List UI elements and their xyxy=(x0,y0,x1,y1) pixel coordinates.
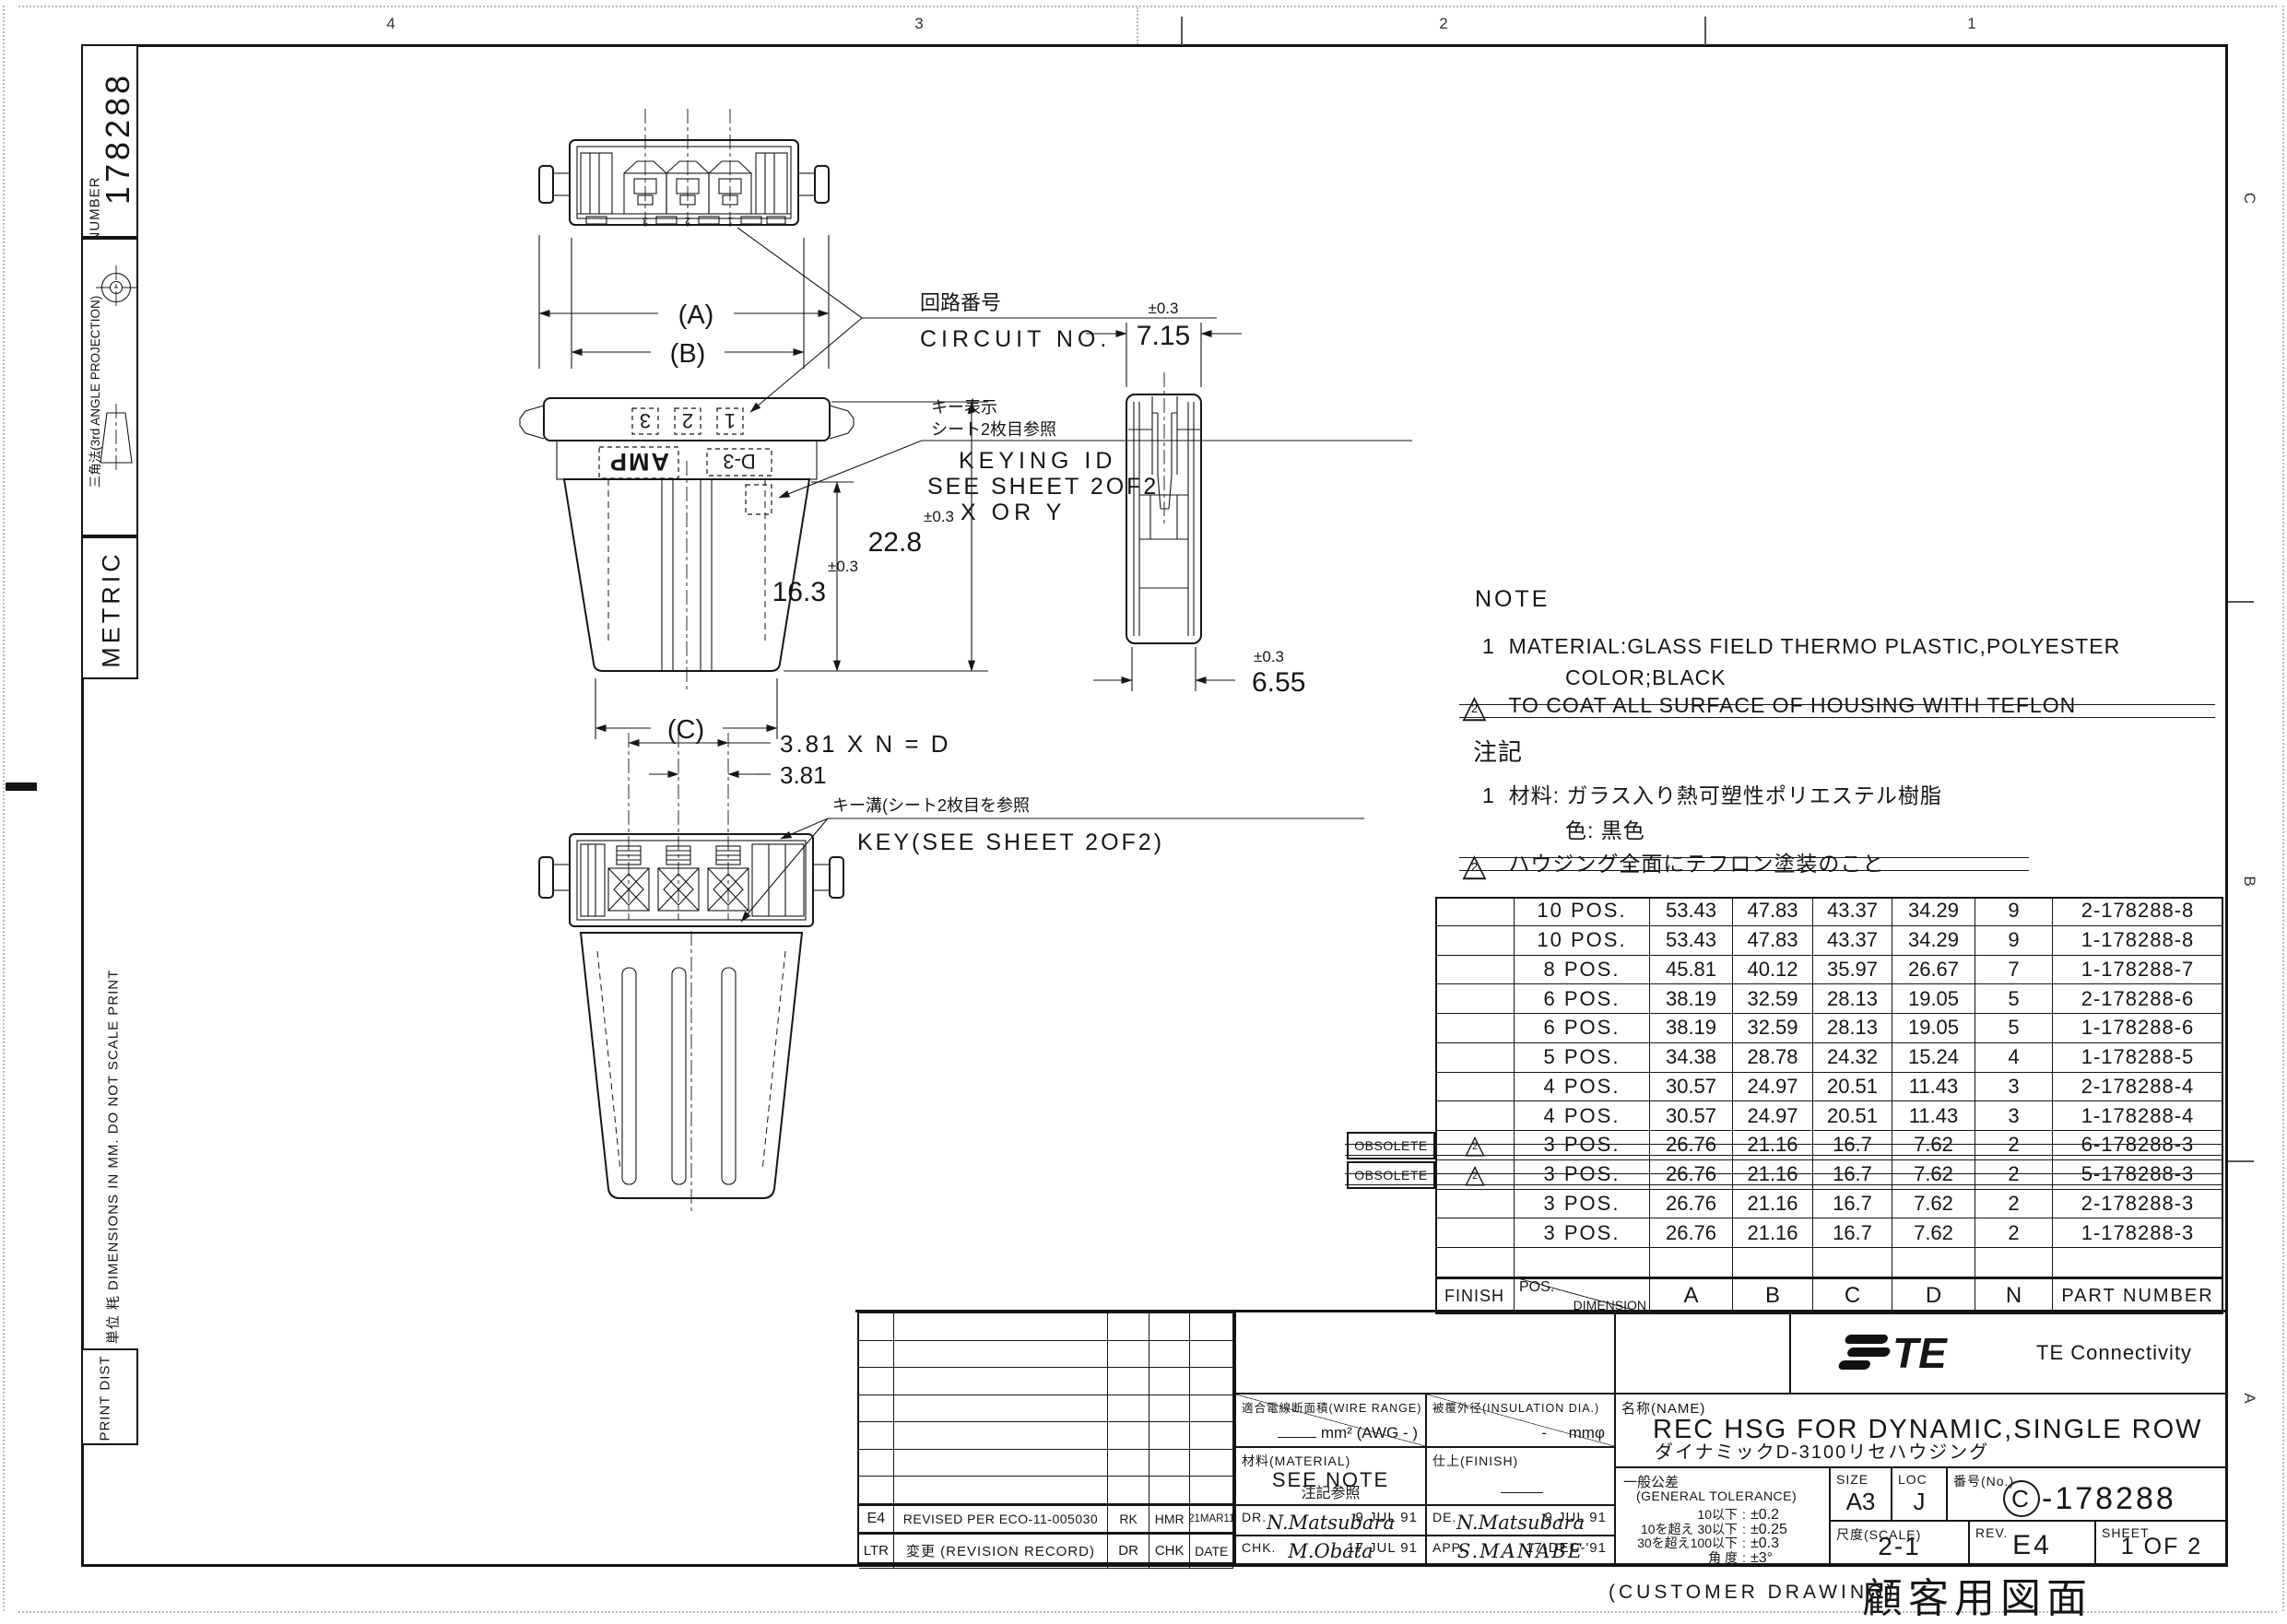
revision-row xyxy=(859,1477,1233,1504)
header-pos-dimension: POS. DIMENSION xyxy=(1515,1277,1650,1314)
keying-en2: SEE SHEET 2OF2 xyxy=(927,474,1159,500)
cell-a: 30.57 xyxy=(1650,1101,1733,1131)
cell-d: 15.24 xyxy=(1892,1043,1975,1073)
cell-c: 16.7 xyxy=(1813,1218,1892,1248)
cell-n: 3 xyxy=(1975,1101,2053,1131)
size-label: SIZE xyxy=(1836,1472,1869,1487)
cell-part: 1-178288-7 xyxy=(2053,956,2223,985)
cell-d: 11.43 xyxy=(1892,1101,1975,1131)
note-item1-text: MATERIAL:GLASS FIELD THERMO PLASTIC,POLY… xyxy=(1509,634,2121,658)
cell-finish xyxy=(1435,1014,1515,1043)
tol-range: 角 度 xyxy=(1620,1551,1738,1566)
tol-value: ±0.2 xyxy=(1751,1508,1825,1523)
keying-en1: KEYING ID xyxy=(959,448,1116,474)
cell-c: 20.51 xyxy=(1813,1101,1892,1131)
cell-part: 2-178288-6 xyxy=(2053,984,2223,1014)
cell-part: 2-178288-8 xyxy=(2053,897,2223,926)
cell-n: 3 xyxy=(1975,1073,2053,1102)
revision-row xyxy=(859,1422,1233,1450)
material-label: 材料(MATERIAL) xyxy=(1242,1452,1350,1470)
cell-b: 21.16 xyxy=(1733,1190,1813,1219)
circled-c: C xyxy=(2003,1480,2040,1517)
parts-table-header: FINISH POS. DIMENSION A B C D N PART NUM… xyxy=(1435,1277,2223,1314)
wire-range-label: 適合電線断面積(WIRE RANGE) xyxy=(1242,1398,1421,1416)
revision-row xyxy=(859,1313,1233,1341)
cell-part: 1-178288-4 xyxy=(2053,1101,2223,1131)
cell-n: 9 xyxy=(1975,897,2053,926)
loc-value: J xyxy=(1892,1488,1946,1516)
header-pos: POS. xyxy=(1519,1279,1554,1296)
cell-c: 20.51 xyxy=(1813,1073,1892,1102)
tb-brand-cell: TE TE Connectivity xyxy=(1790,1312,2228,1394)
cell-n: 5 xyxy=(1975,984,2053,1014)
cell-finish xyxy=(1435,1073,1515,1102)
rev-dr: RK xyxy=(1108,1506,1149,1533)
note-item1-jp-no: 1 xyxy=(1482,783,1495,807)
strike-line xyxy=(1459,857,2029,858)
cell-a: 45.81 xyxy=(1650,956,1733,985)
revision-row xyxy=(859,1368,1233,1395)
cell-finish xyxy=(1435,926,1515,956)
tb-loc: LOC J xyxy=(1892,1467,1947,1521)
dim-22-8: 22.8 xyxy=(868,527,922,558)
rev-header-chk: CHK xyxy=(1149,1535,1191,1569)
dim-a-label: (A) xyxy=(678,300,714,330)
revision-empty-rows xyxy=(859,1313,1233,1504)
cell-finish xyxy=(1435,1101,1515,1131)
strike-line xyxy=(1459,704,2215,705)
projection-symbol xyxy=(96,265,136,472)
cell-b: 32.59 xyxy=(1733,984,1813,1014)
dim-6-55: 6.55 xyxy=(1252,667,1305,698)
cell-finish xyxy=(1435,1190,1515,1219)
cell-n: 9 xyxy=(1975,926,2053,956)
cell-pos: 6 POS. xyxy=(1515,984,1650,1014)
rev-header-dr: DR xyxy=(1108,1535,1149,1569)
cell-n: 4 xyxy=(1975,1043,2053,1073)
tb-number: 番号(No.) C-178288 xyxy=(1947,1467,2228,1521)
revision-row xyxy=(859,1341,1233,1369)
scale-value: 2-1 xyxy=(1831,1532,1968,1561)
tolerance-label-en: (GENERAL TOLERANCE) xyxy=(1636,1489,1797,1503)
note-item2-jp-text: ハウジング全面にテフロン塗装のこと xyxy=(1508,852,1884,876)
rev-date: 21MAR11 xyxy=(1190,1506,1233,1533)
cell-finish xyxy=(1435,1043,1515,1073)
cell-part: 1-178288-6 xyxy=(2053,1014,2223,1043)
cell-pos: 10 POS. xyxy=(1515,926,1650,956)
cell-finish xyxy=(1435,956,1515,985)
tb-tolerance: 一般公差 (GENERAL TOLERANCE) 10以下:±0.2 10を超え… xyxy=(1615,1467,1830,1564)
revision-table: E4 REVISED PER ECO-11-005030 RK HMR 21MA… xyxy=(857,1312,1235,1564)
cell-part: 1-178288-8 xyxy=(2053,926,2223,956)
table-row: 8 POS.45.8140.1235.9726.6771-178288-7 xyxy=(1345,956,2223,985)
note-item1-no: 1 xyxy=(1482,634,1495,658)
parts-table: 10 POS.53.4347.8343.3734.2992-178288-810… xyxy=(1345,897,2223,1314)
parts-table-rows: 10 POS.53.4347.8343.3734.2992-178288-810… xyxy=(1345,897,2223,1277)
table-row: 3 POS.26.7621.1616.77.6221-178288-3 xyxy=(1345,1218,2223,1248)
rev-header-desc: 変更 (REVISION RECORD) xyxy=(894,1535,1109,1569)
tol-value: ±0.3 xyxy=(1751,1536,1825,1551)
material-value-jp: 注記参照 xyxy=(1236,1480,1425,1502)
note-item1: 1 MATERIAL:GLASS FIELD THERMO PLASTIC,PO… xyxy=(1482,634,2120,659)
cell-d: 19.05 xyxy=(1892,1014,1975,1043)
front-pos-number: 3 xyxy=(640,409,651,432)
cell-c: 43.37 xyxy=(1813,926,1892,956)
cavity-number: 3 xyxy=(642,215,648,226)
rev-ltr: E4 xyxy=(859,1506,894,1533)
tol-range: 10以下 xyxy=(1620,1508,1738,1523)
cell-c: 28.13 xyxy=(1813,1014,1892,1043)
header-part-number: PART NUMBER xyxy=(2053,1277,2223,1314)
rev-header-date: DATE xyxy=(1190,1535,1233,1569)
pitch-value: 3.81 xyxy=(780,761,827,789)
dim-16-3: 16.3 xyxy=(772,577,826,607)
insulation-label: 被覆外径(INSULATION DIA.) xyxy=(1432,1398,1599,1416)
tb-rev: REV. E4 xyxy=(1969,1521,2095,1564)
cell-pos xyxy=(1515,1248,1650,1277)
dr-signature: N.Matsubara xyxy=(1236,1512,1425,1534)
cell-part: 2-178288-4 xyxy=(2053,1073,2223,1102)
wire-range-value: mm² (AWG - ) xyxy=(1278,1424,1418,1442)
dim-22-8-tol: ±0.3 xyxy=(924,508,954,525)
document-number: C-178288 xyxy=(2003,1480,2176,1517)
cell-a: 38.19 xyxy=(1650,984,1733,1014)
header-b: B xyxy=(1733,1277,1813,1314)
table-row: 6 POS.38.1932.5928.1319.0551-178288-6 xyxy=(1345,1014,2223,1043)
revision-triangle-icon: 2 xyxy=(1462,1163,1488,1186)
dim-a-b: (A) (B) xyxy=(539,235,829,369)
note-item2-text: TO COAT ALL SURFACE OF HOUSING WITH TEFL… xyxy=(1508,693,2076,717)
tol-value: ±3° xyxy=(1751,1551,1825,1566)
view-top: 3 2 1 xyxy=(539,109,829,230)
tolerance-row: 10以下:±0.2 xyxy=(1620,1508,1825,1523)
tb-size: SIZE A3 xyxy=(1830,1467,1892,1521)
cell-b: 24.97 xyxy=(1733,1101,1813,1131)
cell-b: 40.12 xyxy=(1733,956,1813,985)
cell-c: 24.32 xyxy=(1813,1043,1892,1073)
tb-chk: CHK. 17 JUL 91 M.Obata xyxy=(1235,1536,1426,1564)
cell-a xyxy=(1650,1248,1733,1277)
wire-range-unit: mm² (AWG - ) xyxy=(1321,1424,1418,1442)
cell-a: 26.76 xyxy=(1650,1218,1733,1248)
brand-name: TE Connectivity xyxy=(2036,1341,2192,1365)
cell-part: 1-178288-3 xyxy=(2053,1218,2223,1248)
keying-en3: X OR Y xyxy=(961,500,1066,525)
customer-drawing-en: (CUSTOMER DRAWING) xyxy=(1609,1582,1896,1604)
tb-empty-cell xyxy=(1615,1312,1790,1394)
cell-n: 5 xyxy=(1975,1014,2053,1043)
strike-line xyxy=(1345,1184,2223,1185)
table-row: 10 POS.53.4347.8343.3734.2991-178288-8 xyxy=(1345,926,2223,956)
rev-header-ltr: LTR xyxy=(859,1535,894,1569)
rev-desc: REVISED PER ECO-11-005030 xyxy=(894,1506,1109,1533)
tolerance-row: 10を超え 30以下:±0.25 xyxy=(1620,1523,1825,1537)
finish-none-line xyxy=(1501,1492,1543,1493)
revision-header-row: LTR 変更 (REVISION RECORD) DR CHK DATE xyxy=(859,1533,1233,1569)
cell-d xyxy=(1892,1248,1975,1277)
rev-chk: HMR xyxy=(1149,1506,1191,1533)
note-item1-jp-text: 材料: ガラス入り熱可塑性ポリエステル樹脂 xyxy=(1509,783,1942,807)
cell-d: 34.29 xyxy=(1892,897,1975,926)
cell-finish xyxy=(1435,897,1515,926)
tolerance-row: 角 度:±3° xyxy=(1620,1551,1825,1566)
tb-de: DE. 9 JUL 91 N.Matsubara xyxy=(1426,1505,1615,1536)
revision-entry-row: E4 REVISED PER ECO-11-005030 RK HMR 21MA… xyxy=(859,1504,1233,1533)
rev-value: E4 xyxy=(1970,1530,2094,1561)
cell-pos: 5 POS. xyxy=(1515,1043,1650,1073)
circuit-no-jp: 回路番号 xyxy=(920,291,1001,314)
cell-pos: 10 POS. xyxy=(1515,897,1650,926)
table-row: OBSOLETE23 POS.26.7621.1616.77.6226-1782… xyxy=(1345,1131,2223,1160)
dim-16-3-tol: ±0.3 xyxy=(828,558,858,575)
front-pos-number: 2 xyxy=(682,409,693,432)
cell-c: 16.7 xyxy=(1813,1190,1892,1219)
finish-label: 仕上(FINISH) xyxy=(1432,1452,1518,1470)
amp-logo-text: AMP xyxy=(608,448,669,476)
cell-part: 2-178288-3 xyxy=(2053,1190,2223,1219)
cell-pos: 8 POS. xyxy=(1515,956,1650,985)
cell-b: 21.16 xyxy=(1733,1218,1813,1248)
cell-b: 47.83 xyxy=(1733,926,1813,956)
cell-d: 26.67 xyxy=(1892,956,1975,985)
note-item1b-jp: 色: 黒色 xyxy=(1565,813,1645,844)
pitch-formula: 3.81 X N = D xyxy=(780,730,951,758)
table-row: 10 POS.53.4347.8343.3734.2992-178288-8 xyxy=(1345,897,2223,926)
cell-pos: 4 POS. xyxy=(1515,1073,1650,1102)
insulation-dash: - xyxy=(1541,1424,1547,1442)
dim-7-15: 7.15 xyxy=(1137,321,1190,351)
note-item1b: COLOR;BLACK xyxy=(1565,665,1727,690)
dim-c-label: (C) xyxy=(667,715,704,745)
cell-n: 2 xyxy=(1975,1218,2053,1248)
cell-b xyxy=(1733,1248,1813,1277)
tb-finish: 仕上(FINISH) xyxy=(1426,1447,1615,1505)
tol-range: 30を超え100以下 xyxy=(1620,1536,1738,1551)
strike-line xyxy=(1459,717,2215,718)
table-row: OBSOLETE23 POS.26.7621.1616.77.6225-1782… xyxy=(1345,1160,2223,1190)
note-item1-jp: 1 材料: ガラス入り熱可塑性ポリエステル樹脂 xyxy=(1482,778,1942,809)
cell-part: 1-178288-5 xyxy=(2053,1043,2223,1073)
cell-b: 24.97 xyxy=(1733,1073,1813,1102)
front-pos-number: 1 xyxy=(725,409,736,432)
view-front: 3 2 1 AMP D-3 xyxy=(520,398,854,689)
revision-triangle-icon: 2 xyxy=(1459,852,1491,879)
tb-dr: DR. 9 JUL 91 N.Matsubara xyxy=(1235,1505,1426,1536)
cell-c: 28.13 xyxy=(1813,984,1892,1014)
cell-pos: 3 POS. xyxy=(1515,1218,1650,1248)
insulation-unit: mmφ xyxy=(1569,1424,1605,1442)
cell-c: 35.97 xyxy=(1813,956,1892,985)
keying-mark: D-3 xyxy=(723,450,755,473)
blank-value-line xyxy=(1278,1424,1316,1438)
customer-drawing-jp: 顧客用図面 xyxy=(1862,1565,2092,1624)
header-c: C xyxy=(1813,1277,1892,1314)
key-en: KEY(SEE SHEET 2OF2) xyxy=(857,830,1164,855)
cell-a: 26.76 xyxy=(1650,1190,1733,1219)
tb-empty-cell xyxy=(1235,1312,1615,1394)
cell-finish xyxy=(1435,1248,1515,1277)
table-row: 4 POS.30.5724.9720.5111.4331-178288-4 xyxy=(1345,1101,2223,1131)
header-finish: FINISH xyxy=(1435,1277,1515,1314)
strike-line xyxy=(1459,870,2029,871)
note-item2-jp: 2 ハウジング全面にテフロン塗装のこと xyxy=(1459,846,2029,879)
cell-finish xyxy=(1435,1218,1515,1248)
cell-b: 32.59 xyxy=(1733,1014,1813,1043)
cell-part xyxy=(2053,1248,2223,1277)
table-row: 3 POS.26.7621.1616.77.6222-178288-3 xyxy=(1345,1190,2223,1219)
loc-label: LOC xyxy=(1898,1472,1927,1487)
revision-row xyxy=(859,1395,1233,1423)
tol-value: ±0.25 xyxy=(1751,1523,1825,1537)
dim-6-55-tol: ±0.3 xyxy=(1254,648,1284,665)
part-name-jp: ダイナミックD-3100リセハウジング xyxy=(1655,1437,1989,1464)
cell-c xyxy=(1813,1248,1892,1277)
keying-jp2: シート2枚目参照 xyxy=(931,420,1056,439)
keying-jp1: キー表示 xyxy=(931,398,997,417)
tb-wire-range: 適合電線断面積(WIRE RANGE) mm² (AWG - ) xyxy=(1235,1394,1426,1447)
table-row: 5 POS.34.3828.7824.3215.2441-178288-5 xyxy=(1345,1043,2223,1073)
cell-b: 28.78 xyxy=(1733,1043,1813,1073)
circuit-no-en: CIRCUIT NO. xyxy=(920,326,1111,352)
cell-b: 47.83 xyxy=(1733,897,1813,926)
header-dimension: DIMENSION xyxy=(1574,1298,1646,1312)
drawing-sheet: { "zones": {"top": ["4", "3", "2", "1"],… xyxy=(0,0,2287,1617)
tb-material: 材料(MATERIAL) SEE NOTE 注記参照 xyxy=(1235,1447,1426,1505)
keying-id-callout: キー表示 シート2枚目参照 KEYING ID SEE SHEET 2OF2 X… xyxy=(779,398,1412,525)
tb-insulation: 被覆外径(INSULATION DIA.) - mmφ xyxy=(1426,1394,1615,1447)
tol-range: 10を超え 30以下 xyxy=(1620,1523,1738,1537)
note-item2: 2 TO COAT ALL SURFACE OF HOUSING WITH TE… xyxy=(1459,693,2215,721)
cell-d: 34.29 xyxy=(1892,926,1975,956)
cavity-number: 2 xyxy=(685,215,690,226)
dim-7-15-tol: ±0.3 xyxy=(1149,300,1179,317)
table-row: 6 POS.38.1932.5928.1319.0552-178288-6 xyxy=(1345,984,2223,1014)
chk-signature: M.Obata xyxy=(1236,1540,1425,1562)
cell-d: 7.62 xyxy=(1892,1218,1975,1248)
cell-n: 7 xyxy=(1975,956,2053,985)
te-logo-text: TE xyxy=(1892,1329,1948,1377)
table-row xyxy=(1345,1248,2223,1277)
revision-triangle-icon: 2 xyxy=(1462,1134,1488,1157)
strike-line xyxy=(1345,1155,2223,1156)
cell-a: 30.57 xyxy=(1650,1073,1733,1102)
cell-pos: 3 POS. xyxy=(1515,1190,1650,1219)
cell-c: 43.37 xyxy=(1813,897,1892,926)
note-title: NOTE xyxy=(1475,586,1550,613)
tb-app: APP. 17-DEC-'91 S.MANABE xyxy=(1426,1536,1615,1564)
te-logo: TE xyxy=(1835,1327,1953,1379)
cell-a: 53.43 xyxy=(1650,926,1733,956)
header-d: D xyxy=(1892,1277,1975,1314)
tb-scale: 尺度(SCALE) 2-1 xyxy=(1830,1521,1969,1564)
view-bottom xyxy=(539,733,843,1215)
header-a: A xyxy=(1650,1277,1733,1314)
revision-row xyxy=(859,1450,1233,1477)
cell-d: 7.62 xyxy=(1892,1190,1975,1219)
tolerance-row: 30を超え100以下:±0.3 xyxy=(1620,1536,1825,1551)
circuit-no-callout: 回路番号 CIRCUIT NO. xyxy=(737,228,1217,412)
tb-sheet: SHEET 1 OF 2 xyxy=(2095,1521,2228,1564)
cell-n: 2 xyxy=(1975,1190,2053,1219)
strike-line xyxy=(1345,1144,2223,1145)
app-signature: S.MANABE xyxy=(1427,1540,1614,1562)
cell-a: 38.19 xyxy=(1650,1014,1733,1043)
key-callout: キー溝(シート2枚目を参照 KEY(SEE SHEET 2OF2) xyxy=(741,796,1364,922)
table-row: 4 POS.30.5724.9720.5111.4332-178288-4 xyxy=(1345,1073,2223,1102)
cell-d: 19.05 xyxy=(1892,984,1975,1014)
cell-finish xyxy=(1435,984,1515,1014)
size-value: A3 xyxy=(1831,1488,1891,1516)
note-title-jp: 注記 xyxy=(1473,734,1523,768)
sheet-value: 1 OF 2 xyxy=(2096,1534,2227,1560)
key-jp: キー溝(シート2枚目を参照 xyxy=(832,796,1030,815)
cell-pos: 4 POS. xyxy=(1515,1101,1650,1131)
header-n: N xyxy=(1975,1277,2053,1314)
dim-b-label: (B) xyxy=(670,339,706,369)
cell-pos: 6 POS. xyxy=(1515,1014,1650,1043)
cell-a: 53.43 xyxy=(1650,897,1733,926)
strike-line xyxy=(1345,1173,2223,1174)
de-signature: N.Matsubara xyxy=(1427,1512,1614,1534)
tb-name: 名称(NAME) REC HSG FOR DYNAMIC,SINGLE ROW … xyxy=(1615,1394,2228,1467)
cavity-number: 1 xyxy=(727,215,733,226)
document-number-digits: -178288 xyxy=(2042,1481,2176,1517)
cell-a: 34.38 xyxy=(1650,1043,1733,1073)
tolerance-rows: 10以下:±0.2 10を超え 30以下:±0.25 30を超え100以下:±0… xyxy=(1620,1508,1825,1565)
cell-d: 11.43 xyxy=(1892,1073,1975,1102)
cell-n xyxy=(1975,1248,2053,1277)
insulation-value: - mmφ xyxy=(1541,1424,1605,1442)
